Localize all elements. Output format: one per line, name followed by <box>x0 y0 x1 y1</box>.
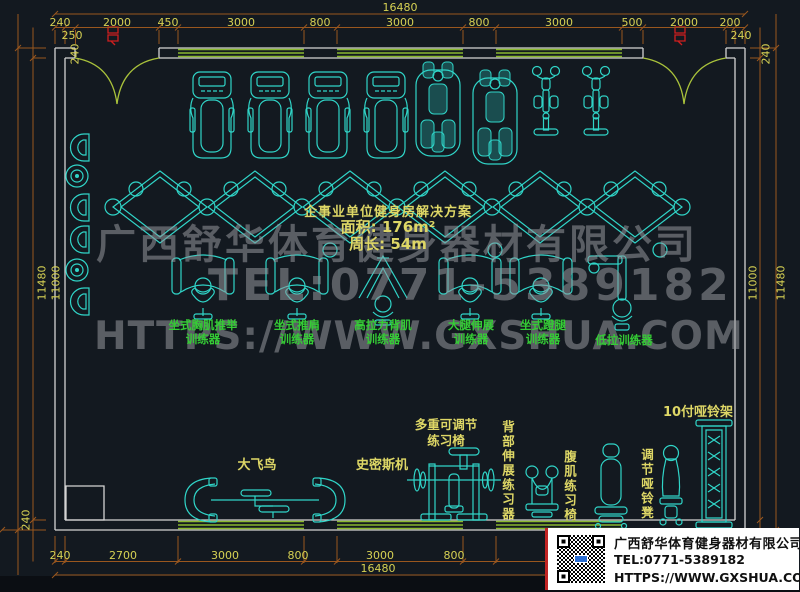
dim-right-inner: 11000 <box>747 266 760 301</box>
label-lat-pulldown: 高拉力背肌 训练器 <box>354 318 412 347</box>
dim-left-inner: 11000 <box>50 266 63 301</box>
door-tag-icon <box>108 27 118 45</box>
dim-bottom-seg: 3000 <box>211 549 239 562</box>
label-low-row: 低拉训练器 <box>595 333 653 347</box>
dim-bottom-seg: 3000 <box>366 549 394 562</box>
dim-top-seg: 3000 <box>227 16 255 29</box>
adjustable-dumbbell-bench <box>660 446 682 526</box>
leg-extension-machine <box>439 255 501 319</box>
dim-bottom-seg: 800 <box>288 549 309 562</box>
lat-pulldown-machine <box>359 256 407 325</box>
dim-top-seg: 3000 <box>386 16 414 29</box>
cad-drawing-canvas: 广西舒华体育健身器材有限公司 TEL:0771-5389182 HTTPS://… <box>0 0 800 592</box>
card-url: HTTPS://WWW.GXSHUA.COM <box>614 570 800 585</box>
back-extension-bench <box>526 466 558 517</box>
dim-top-overall: 16480 <box>383 1 418 14</box>
label-chest-press: 坐式胸肌推举 训练器 <box>169 318 238 347</box>
dim-top-seg: 800 <box>469 16 490 29</box>
label-shoulder-press: 坐式推肩 训练器 <box>274 318 320 347</box>
label-leg-press: 坐式蹬腿 训练器 <box>520 318 566 347</box>
label-dumbbell-rack: 10付哑铃架 <box>663 405 733 421</box>
low-row-machine <box>588 256 632 330</box>
dim-left-outer: 11480 <box>36 266 49 301</box>
cable-crossover-machine <box>185 478 345 522</box>
dim-bottom-overall: 16480 <box>361 562 396 575</box>
label-leg-extension: 大腿伸展 训练器 <box>448 318 494 347</box>
dim-top-seg: 200 <box>720 16 741 29</box>
leg-press-machine <box>510 255 572 319</box>
card-tel: TEL:0771-5389182 <box>614 552 745 567</box>
label-back-extension: 背部伸展练习器 <box>498 420 517 522</box>
label-dumbbell-bench: 调节哑铃凳 <box>637 448 656 521</box>
label-adjustable-bench: 多重可调节 练习椅 <box>415 417 478 448</box>
double-door-right <box>643 58 726 104</box>
dim-top-sub-right: 240 <box>731 29 752 42</box>
label-ab-bench: 腹肌练习椅 <box>560 450 579 523</box>
plan-perimeter: 周长: 54m <box>349 233 427 254</box>
label-smith-machine: 史密斯机 <box>356 458 408 474</box>
left-wall-seats <box>66 134 89 315</box>
dim-top-seg: 240 <box>50 16 71 29</box>
double-door-left <box>75 58 159 104</box>
window-strips <box>178 50 622 529</box>
dim-top-seg: 2000 <box>103 16 131 29</box>
chest-press-machine <box>172 255 234 319</box>
dim-top-seg: 450 <box>158 16 179 29</box>
dim-bottom-seg: 240 <box>50 549 71 562</box>
treadmill-row <box>190 72 408 158</box>
dim-top-seg: 800 <box>310 16 331 29</box>
label-cable-crossover: 大飞鸟 <box>237 458 276 474</box>
dim-left-bottom: 240 <box>20 510 33 531</box>
door-tag-icon <box>675 27 685 45</box>
dim-top-seg: 2000 <box>670 16 698 29</box>
smith-machine <box>407 448 501 520</box>
dim-right-top: 240 <box>760 44 773 65</box>
shoulder-press-machine <box>266 255 328 319</box>
qr-code <box>555 533 607 585</box>
floor-plan-linework <box>0 0 800 592</box>
exercise-bikes <box>533 67 610 136</box>
ab-crunch-bench <box>595 444 627 529</box>
dim-bottom-seg: 2700 <box>109 549 137 562</box>
dim-bottom-seg: 800 <box>444 549 465 562</box>
dim-right-outer: 11480 <box>775 266 788 301</box>
dim-top-seg: 3000 <box>545 16 573 29</box>
elliptical-machines <box>416 62 517 164</box>
dumbbell-rack <box>696 420 732 528</box>
card-company: 广西舒华体育健身器材有限公司 <box>614 533 800 552</box>
dim-top-seg: 500 <box>622 16 643 29</box>
company-info-card: 广西舒华体育健身器材有限公司 TEL:0771-5389182 HTTPS://… <box>545 528 799 590</box>
dim-left-top: 240 <box>69 44 82 65</box>
dim-top-sub-left: 250 <box>62 29 83 42</box>
